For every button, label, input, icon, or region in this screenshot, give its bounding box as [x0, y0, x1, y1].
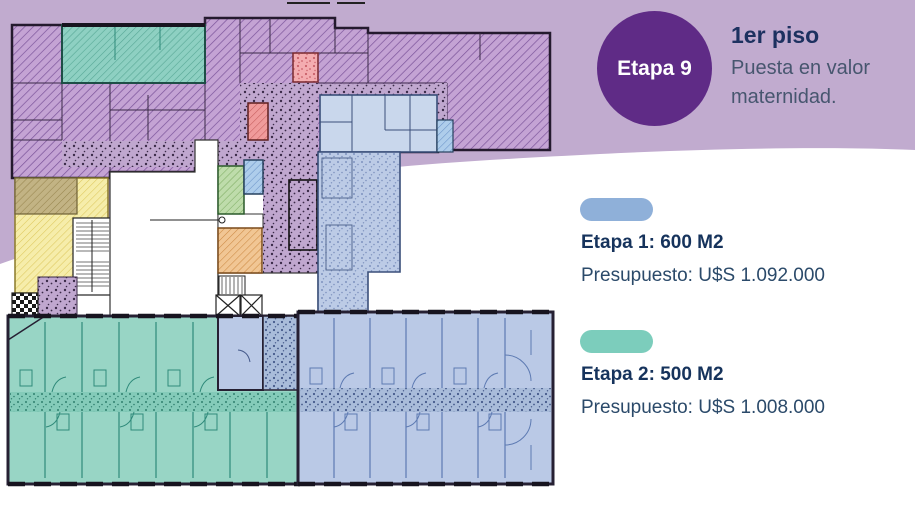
elevator-checker [12, 293, 38, 316]
slide: Etapa 9 1er piso Puesta en valor materni… [0, 0, 915, 506]
room-small-blue [244, 160, 263, 194]
room-pink-stipple [293, 53, 318, 82]
legend-swatch-etapa2 [580, 330, 653, 353]
zone-teal-ward [8, 316, 300, 484]
zone-blue-upper [318, 95, 453, 312]
page-title: 1er piso [731, 22, 911, 49]
stairs-left [73, 218, 112, 295]
stage-badge: Etapa 9 [597, 11, 712, 126]
legend-swatch-etapa1 [580, 198, 653, 221]
zone-blue-ward [298, 312, 553, 484]
page-subtitle: Puesta en valor maternidad. [731, 54, 911, 112]
stairs-center [219, 276, 245, 295]
title-block: 1er piso Puesta en valor maternidad. [731, 22, 911, 112]
room-red-hatched [248, 103, 268, 140]
legend-budget-etapa1: Presupuesto: U$S 1.092.000 [581, 265, 825, 287]
legend-title-etapa2: Etapa 2: 500 M2 [581, 364, 724, 386]
legend-budget-etapa2: Presupuesto: U$S 1.008.000 [581, 397, 825, 419]
stage-badge-label: Etapa 9 [617, 57, 692, 81]
room-green [218, 166, 244, 214]
stipple-patch-left [38, 277, 77, 317]
zone-tan [15, 178, 77, 214]
floor-plan [0, 0, 560, 506]
room-orange [218, 228, 262, 273]
room-teal-top [62, 25, 205, 83]
elevator-x-boxes [216, 295, 262, 316]
legend-title-etapa1: Etapa 1: 600 M2 [581, 232, 724, 254]
